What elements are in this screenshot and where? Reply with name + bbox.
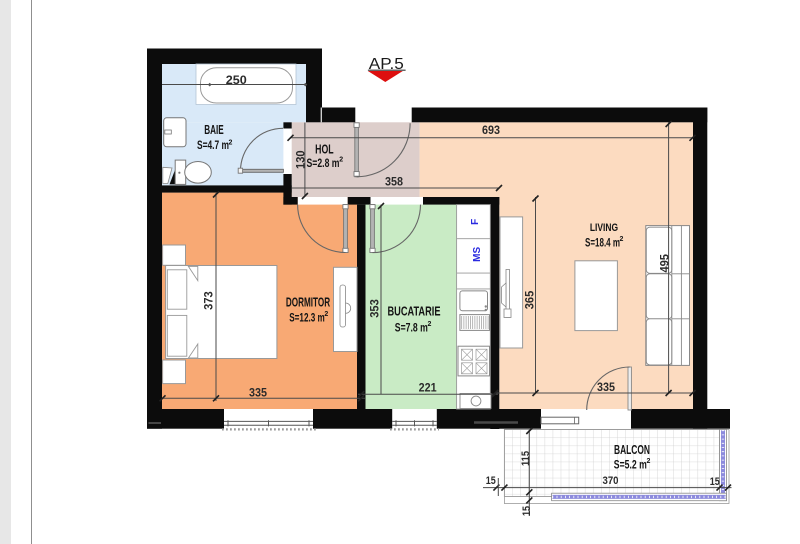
svg-text:F: F xyxy=(470,219,481,225)
svg-text:S=18.4 m: S=18.4 m xyxy=(585,238,620,250)
svg-text:495: 495 xyxy=(657,254,671,273)
svg-text:MS: MS xyxy=(472,246,483,261)
svg-text:130: 130 xyxy=(293,150,307,169)
svg-text:BUCATARIE: BUCATARIE xyxy=(388,304,441,319)
svg-text:BAIE: BAIE xyxy=(204,122,224,137)
svg-text:HOL: HOL xyxy=(315,141,334,156)
svg-text:LIVING: LIVING xyxy=(590,222,618,234)
svg-text:250: 250 xyxy=(226,73,247,87)
svg-text:S=12.3 m: S=12.3 m xyxy=(289,312,325,324)
svg-text:115: 115 xyxy=(520,451,532,466)
svg-text:S=5.2 m: S=5.2 m xyxy=(614,460,647,472)
svg-text:S=2.8 m: S=2.8 m xyxy=(307,158,340,170)
svg-text:353: 353 xyxy=(367,299,381,318)
svg-text:2: 2 xyxy=(647,458,651,465)
svg-text:335: 335 xyxy=(597,380,615,394)
svg-text:2: 2 xyxy=(428,321,432,328)
svg-text:221: 221 xyxy=(419,381,437,395)
svg-text:2: 2 xyxy=(324,311,328,318)
svg-text:DORMITOR: DORMITOR xyxy=(286,294,331,309)
svg-text:335: 335 xyxy=(249,386,267,400)
svg-text:15: 15 xyxy=(710,476,720,488)
svg-text:2: 2 xyxy=(339,157,343,164)
svg-text:370: 370 xyxy=(603,475,619,487)
svg-text:S=7.8 m: S=7.8 m xyxy=(395,323,428,335)
svg-text:2: 2 xyxy=(620,236,624,243)
svg-text:365: 365 xyxy=(523,290,537,309)
svg-text:S=4.7 m: S=4.7 m xyxy=(197,140,229,152)
svg-text:15: 15 xyxy=(521,506,533,516)
svg-text:693: 693 xyxy=(482,123,500,137)
svg-text:373: 373 xyxy=(202,291,216,310)
svg-text:358: 358 xyxy=(385,175,403,189)
svg-text:BALCON: BALCON xyxy=(614,442,650,457)
svg-text:2: 2 xyxy=(229,139,233,146)
svg-text:15: 15 xyxy=(486,475,496,487)
